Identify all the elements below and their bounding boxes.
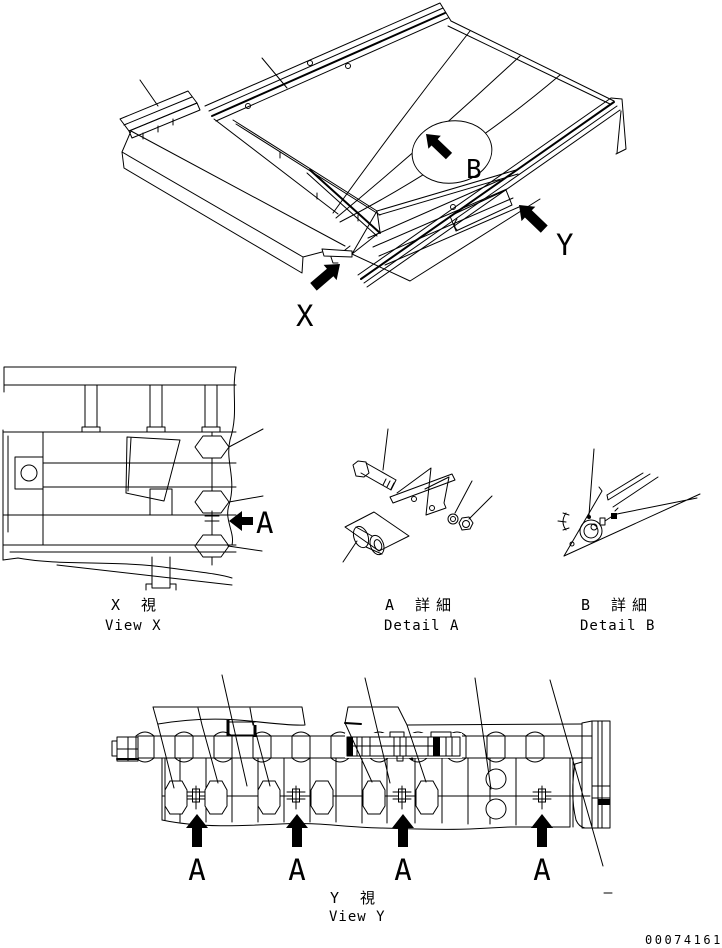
hatch-marks [228,720,255,737]
marker-a-4: A [533,853,550,887]
view-y: A A A A Y 視 View Y [112,675,612,925]
top-panels [153,707,582,725]
marker-a-1: A [188,853,205,887]
view-x: A X 視 View X [3,367,273,634]
bolt-head [611,513,617,519]
view-y-direction-arrow [519,205,548,233]
marker-a: A [256,506,273,540]
bolt [353,461,396,490]
detail-b: B 詳細 Detail B [558,449,700,634]
bottom-edge [162,820,570,829]
parts-diagram: B X Y [0,0,722,948]
view-x-caption-cjk: X 視 [111,596,162,614]
detail-a-arrow [229,511,253,531]
front-wall [322,170,540,281]
bracket [390,468,455,515]
end-cap [573,721,610,828]
weld-stud-marks [143,119,358,221]
view-x-direction-arrow [310,264,340,291]
leader-line [455,481,472,513]
view-y-caption-cjk: Y 視 [330,889,381,907]
leader-line [383,429,388,470]
doc-number: 00074161 [645,933,722,947]
marker-a-3: A [394,853,411,887]
marker-a-2: A [288,853,305,887]
view-y-caption-en: View Y [329,909,386,925]
nut [459,517,473,530]
hex-bolt-heads [195,436,229,557]
grommet [580,520,602,542]
view-x-caption-en: View X [105,618,162,634]
detail-callout-balloon-b: B [408,116,496,189]
detail-a: A 詳細 Detail A [343,429,492,634]
leader-line [343,541,357,562]
marker-y: Y [556,228,573,262]
detail-b-caption-en: Detail B [580,618,655,634]
marker-b: B [466,155,482,185]
leader-line [469,496,492,519]
bolt-symbol [205,511,219,529]
clip [600,518,605,525]
latch-rail [345,732,462,761]
parts-diagram-page: B X Y [0,0,722,948]
isometric-overview: B X Y [120,3,626,333]
marker-x: X [296,299,314,333]
plate-with-bushing [345,512,409,557]
left-connector [112,737,138,761]
detail-a-caption-cjk: A 詳細 [385,596,457,614]
detail-a-caption-en: Detail A [384,618,459,634]
hat-stiffeners [82,385,220,432]
detail-b-caption-cjk: B 詳細 [581,596,653,614]
washer [448,514,458,524]
